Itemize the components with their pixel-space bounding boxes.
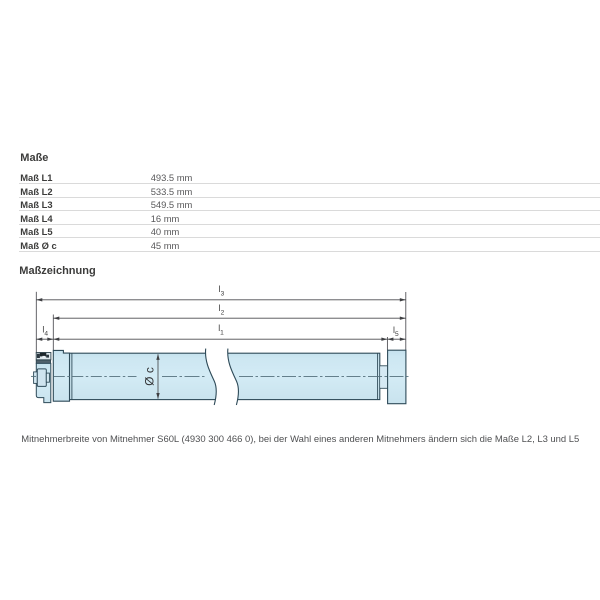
svg-text:l2: l2 (219, 303, 225, 316)
svg-text:Ø c: Ø c (143, 367, 157, 386)
svg-text:l1: l1 (218, 323, 224, 336)
svg-text:l3: l3 (219, 284, 225, 297)
svg-text:l4: l4 (42, 325, 48, 338)
svg-text:l5: l5 (393, 325, 399, 338)
